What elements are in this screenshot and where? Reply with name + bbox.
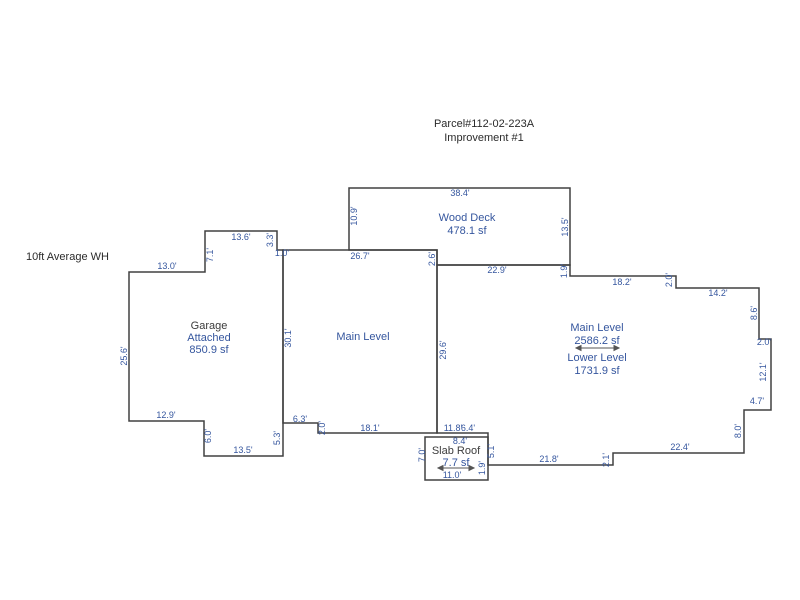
main-level-right-label: Main Level [570, 322, 623, 334]
dim-r-47: 4.7' [750, 396, 765, 406]
dim-g-top: 13.6' [231, 232, 251, 242]
dim-g-60: 6.0' [203, 429, 213, 444]
wood-deck-label: Wood Deck [439, 212, 496, 224]
main-level-center-label: Main Level [336, 331, 389, 343]
dim-g-256: 25.6' [119, 346, 129, 366]
dim-mc-63: 6.3' [293, 414, 308, 424]
dim-s-64: 6.4' [461, 423, 476, 433]
dim-mc-left: 30.1' [283, 328, 293, 348]
dim-r-142: 14.2' [708, 288, 728, 298]
dim-mc-right: 29.6' [438, 340, 448, 360]
dim-r-20b: 2.0' [757, 337, 772, 347]
dim-g-33: 3.3' [265, 233, 275, 248]
dim-d-right: 13.5' [560, 217, 570, 237]
dim-g-10: 1.0' [275, 248, 290, 258]
garage-area-label: 850.9 sf [189, 344, 229, 356]
dim-r-182: 18.2' [612, 277, 632, 287]
dim-mc-26: 2.6' [427, 252, 437, 267]
wood-deck-area-label: 478.1 sf [447, 225, 487, 237]
dim-r-80: 8.0' [733, 424, 743, 439]
dim-mc-20: 2.0' [317, 421, 327, 436]
dim-d-top: 38.4' [450, 188, 470, 198]
dim-g-129: 12.9' [156, 410, 176, 420]
dim-s-19: 1.9' [477, 461, 487, 476]
lower-level-area-label: 1731.9 sf [574, 365, 620, 377]
slab-roof-area-label: 7.7 sf [443, 457, 471, 469]
dim-s-118: 11.8' [444, 423, 463, 433]
dim-r-218: 21.8' [539, 454, 559, 464]
wall-height-note: 10ft Average WH [26, 251, 109, 263]
dim-d-left: 10.9' [349, 206, 359, 226]
garage-type-label: Attached [187, 332, 230, 344]
lower-level-label: Lower Level [567, 352, 626, 364]
slab-roof-label: Slab Roof [432, 445, 481, 457]
dim-r-20a: 2.0' [664, 273, 674, 288]
garage-label: Garage [191, 320, 228, 332]
dim-g-71: 7.1' [205, 248, 215, 263]
dim-s-51: 5.1' [486, 444, 496, 459]
parcel-title: Parcel#112-02-223A [434, 118, 535, 130]
dim-mc-top: 26.7' [350, 251, 370, 261]
property-sketch-canvas: 13.6'7.1'3.3'1.0'13.0'25.6'12.9'6.0'13.5… [0, 0, 800, 600]
improvement-title: Improvement #1 [444, 132, 523, 144]
dim-s-110: 11.0' [443, 470, 462, 480]
dim-r-21: 2.1' [601, 453, 611, 468]
dim-r-224: 22.4' [670, 442, 690, 452]
dim-g-53: 5.3' [272, 431, 282, 446]
dim-r-121: 12.1' [758, 362, 768, 382]
dim-mc-bot: 18.1' [360, 423, 380, 433]
property-sketch-page: 13.6'7.1'3.3'1.0'13.0'25.6'12.9'6.0'13.5… [0, 0, 800, 600]
dim-d-bot: 22.9' [487, 265, 507, 275]
dim-s-70: 7.0' [417, 448, 427, 463]
dim-r-86: 8.6' [749, 306, 759, 321]
dim-d-19: 1.9' [559, 264, 569, 279]
dim-g-135: 13.5' [233, 445, 253, 455]
dim-g-130: 13.0' [157, 261, 177, 271]
